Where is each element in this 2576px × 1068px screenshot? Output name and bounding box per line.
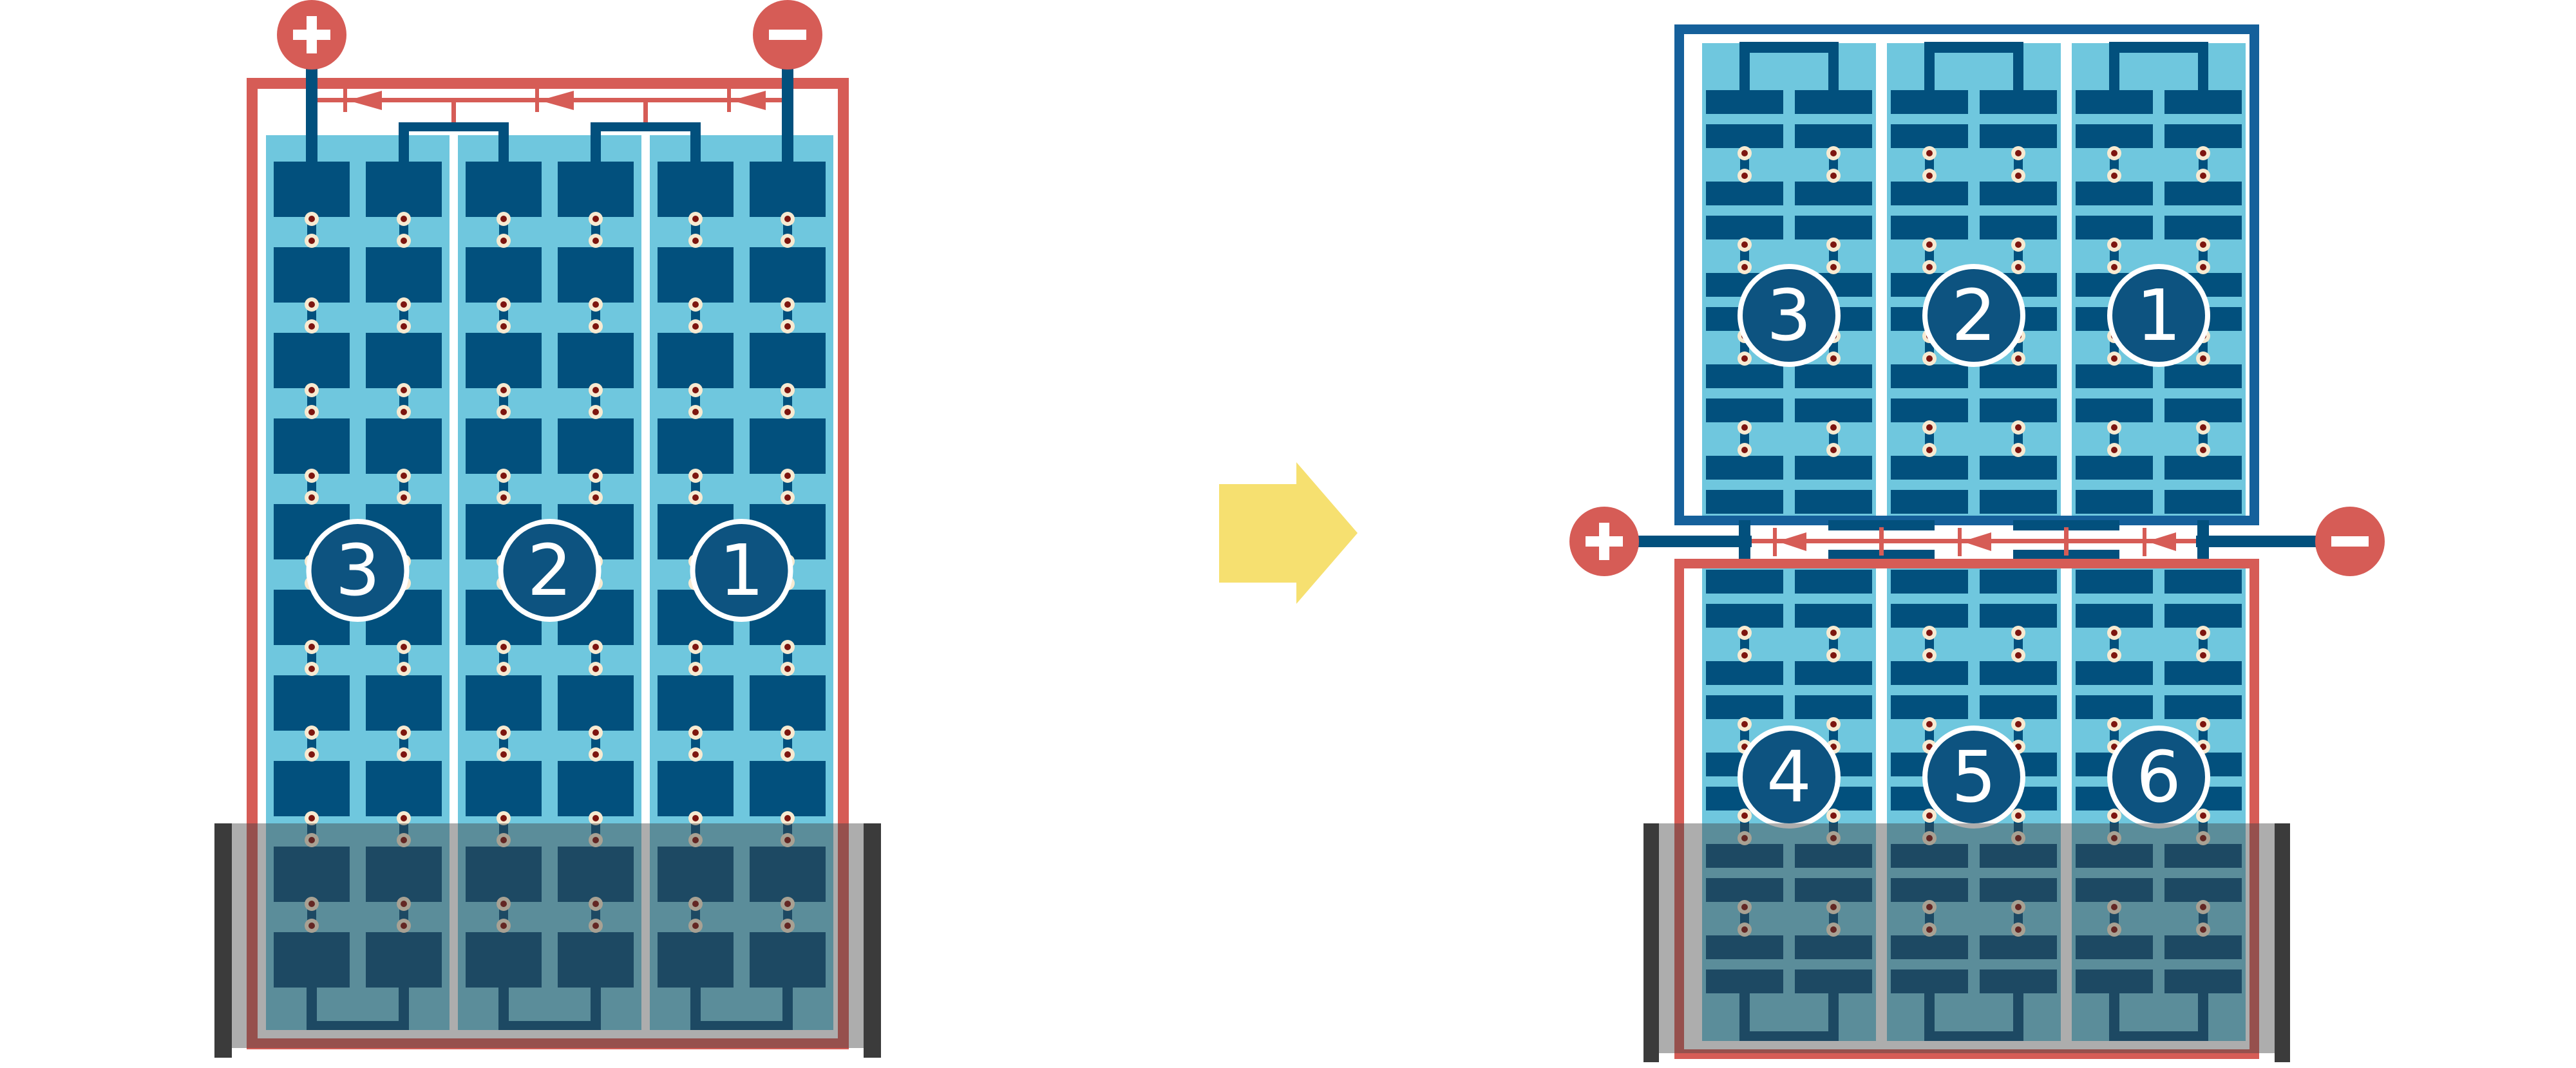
solar-cell: [1891, 90, 1968, 114]
solar-cell: [2076, 490, 2153, 514]
solder-point-core: [1741, 812, 1748, 819]
solar-cell: [558, 761, 634, 816]
string-u-connector-leg: [1924, 53, 1935, 90]
solar-cell: [1706, 695, 1783, 719]
solar-cell: [1980, 570, 2057, 594]
top-half-module: 321: [1680, 30, 2255, 521]
plus-terminal: [1569, 507, 1639, 576]
solder-point-core: [1926, 447, 1933, 453]
string-u-connector-leg: [1828, 53, 1839, 90]
solder-point-core: [592, 729, 599, 736]
solar-cell: [1891, 364, 1968, 388]
string-number-badge: 1: [2110, 267, 2208, 364]
solar-cell: [1891, 695, 1968, 719]
solder-point-core: [784, 473, 791, 479]
solder-point-core: [2015, 721, 2022, 727]
solar-cell: [558, 162, 634, 217]
solar-cell: [366, 247, 442, 303]
solar-cell: [2076, 124, 2153, 148]
solder-point-core: [2015, 447, 2022, 453]
solar-cell: [2076, 456, 2153, 480]
solder-point-core: [2111, 812, 2117, 819]
solar-cell: [658, 675, 734, 731]
solder-point-core: [1741, 173, 1748, 179]
solar-cell: [1795, 570, 1872, 594]
solar-cell: [1980, 90, 2057, 114]
string-number-label: 6: [2136, 736, 2181, 818]
solar-cell: [466, 162, 542, 217]
solder-point-core: [308, 666, 315, 672]
positive-lead-wire: [306, 64, 317, 167]
solder-point-core: [2111, 652, 2117, 659]
string-u-connector: [1924, 42, 2023, 53]
diode-cathode-bar: [2143, 528, 2146, 556]
solar-cell: [1891, 216, 1968, 239]
solar-cell: [558, 675, 634, 731]
solder-point-core: [784, 216, 791, 222]
solar-cell: [658, 333, 734, 388]
solder-point-core: [2111, 424, 2117, 431]
solar-cell: [1980, 364, 2057, 388]
solar-cell: [1980, 398, 2057, 422]
solder-point-core: [500, 644, 507, 650]
solar-cell: [558, 418, 634, 474]
solder-point-core: [308, 729, 315, 736]
solder-point-core: [1926, 150, 1933, 156]
plus-terminal: [277, 0, 346, 70]
solar-cell: [1891, 490, 1968, 514]
solder-point-core: [1741, 630, 1748, 636]
string-bridge-leg: [399, 131, 409, 165]
solder-point-core: [1926, 652, 1933, 659]
string-bridge-leg: [591, 131, 601, 165]
solar-cell: [1706, 182, 1783, 205]
minus-icon: [2331, 536, 2369, 547]
string-u-connector: [2109, 42, 2208, 53]
solder-point-core: [2200, 173, 2206, 179]
solder-point-core: [401, 729, 407, 736]
solder-point-core: [692, 301, 699, 308]
string-number-label: 5: [1951, 736, 1996, 818]
solder-point-core: [2111, 355, 2117, 362]
solder-point-core: [784, 409, 791, 415]
solar-cell: [1706, 216, 1783, 239]
water-edge-bar: [1643, 823, 1659, 1062]
solder-point-core: [308, 216, 315, 222]
solder-point-core: [592, 494, 599, 501]
minus-terminal: [753, 0, 822, 70]
solar-cell: [1795, 695, 1872, 719]
solder-point-core: [592, 815, 599, 821]
solder-point-core: [592, 644, 599, 650]
plus-vertical-bar: [307, 16, 317, 53]
solar-cell: [2164, 695, 2242, 719]
solder-point-core: [592, 387, 599, 393]
solar-cell: [2076, 398, 2153, 422]
solder-point-core: [1741, 652, 1748, 659]
solder-point-core: [2015, 264, 2022, 270]
string-number-label: 4: [1766, 736, 1812, 818]
solder-point-core: [692, 644, 699, 650]
solar-cell: [1706, 398, 1783, 422]
solar-cell: [1980, 695, 2057, 719]
solder-point-core: [2200, 630, 2206, 636]
solar-cell: [2164, 490, 2242, 514]
string-number-badge: 4: [1740, 728, 1838, 826]
string-number-label: 1: [719, 529, 764, 612]
solder-point-core: [784, 644, 791, 650]
solder-point-core: [592, 751, 599, 758]
solder-point-core: [401, 494, 407, 501]
solder-point-core: [692, 473, 699, 479]
solder-point-core: [401, 238, 407, 244]
solar-cell: [274, 761, 350, 816]
solar-cell: [750, 418, 826, 474]
solder-point-core: [308, 323, 315, 330]
solder-point-core: [692, 729, 699, 736]
plus-vertical-bar: [1599, 523, 1609, 560]
solder-point-core: [2111, 150, 2117, 156]
solar-cell: [2076, 695, 2153, 719]
solder-point-core: [1830, 721, 1837, 727]
solar-cell: [366, 761, 442, 816]
solder-point-core: [2200, 812, 2206, 819]
string-number-label: 3: [336, 529, 381, 612]
solar-cell: [1706, 456, 1783, 480]
solder-point-core: [1741, 447, 1748, 453]
negative-lead-wire: [2196, 536, 2316, 547]
solder-point-core: [1741, 150, 1748, 156]
solder-point-core: [401, 323, 407, 330]
solar-cell: [1795, 364, 1872, 388]
solar-cell: [1891, 182, 1968, 205]
solder-point-core: [784, 238, 791, 244]
solar-cell: [2076, 216, 2153, 239]
solar-cell: [2076, 570, 2153, 594]
solder-point-core: [692, 216, 699, 222]
diode-cathode-bar: [727, 89, 731, 112]
solder-point-core: [2200, 721, 2206, 727]
string-bridge-leg: [690, 131, 701, 165]
string-number-badge: 1: [693, 521, 791, 619]
solder-point-core: [308, 409, 315, 415]
solder-point-core: [592, 409, 599, 415]
solar-cell: [1891, 661, 1968, 685]
solar-cell: [1891, 124, 1968, 148]
solder-point-core: [1830, 173, 1837, 179]
string-number-badge: 2: [501, 521, 599, 619]
solder-point-core: [500, 729, 507, 736]
solar-cell: [366, 675, 442, 731]
string-number-label: 1: [2136, 274, 2181, 357]
diagram-canvas: 321321456: [0, 0, 2576, 1068]
solar-cell: [1795, 490, 1872, 514]
solar-cell: [1795, 216, 1872, 239]
solar-cell: [658, 247, 734, 303]
solar-cell: [658, 761, 734, 816]
string-bridge-leg: [498, 131, 509, 165]
solar-cell: [274, 333, 350, 388]
solar-cell: [2164, 456, 2242, 480]
solar-cell: [558, 247, 634, 303]
solder-point-core: [1926, 424, 1933, 431]
solar-cell: [2164, 90, 2242, 114]
solar-cell: [1706, 604, 1783, 628]
diode-cathode-bar: [1958, 528, 1962, 556]
solder-point-core: [1830, 630, 1837, 636]
solder-point-core: [2200, 355, 2206, 362]
solar-cell: [366, 333, 442, 388]
solder-point-core: [1741, 355, 1748, 362]
solar-cell: [1795, 604, 1872, 628]
solar-cell: [2076, 661, 2153, 685]
string-number-label: 2: [527, 529, 573, 612]
solar-cell: [2164, 216, 2242, 239]
solder-point-core: [692, 238, 699, 244]
solder-point-core: [401, 409, 407, 415]
solder-point-core: [2015, 652, 2022, 659]
string-number-badge: 5: [1925, 728, 2023, 826]
solder-point-core: [2015, 150, 2022, 156]
solder-point-core: [1830, 150, 1837, 156]
solar-cell: [1795, 398, 1872, 422]
solder-point-core: [784, 666, 791, 672]
solar-cell: [1980, 490, 2057, 514]
solar-cell: [1795, 661, 1872, 685]
minus-bar: [769, 30, 806, 40]
solder-point-core: [2111, 630, 2117, 636]
solder-point-core: [784, 494, 791, 501]
solder-point-core: [2015, 173, 2022, 179]
solar-cell: [2076, 182, 2153, 205]
solder-point-core: [2111, 241, 2117, 248]
solder-point-core: [500, 238, 507, 244]
solder-point-core: [308, 751, 315, 758]
water-edge-bar: [864, 823, 881, 1058]
solder-point-core: [592, 666, 599, 672]
solar-cell: [1706, 90, 1783, 114]
left-module: 321: [214, 0, 881, 1058]
solar-cell: [1706, 661, 1783, 685]
solder-point-core: [2200, 424, 2206, 431]
solar-cell: [466, 675, 542, 731]
solar-cell: [2076, 364, 2153, 388]
solder-point-core: [1830, 812, 1837, 819]
solder-point-core: [1926, 241, 1933, 248]
solar-cell: [2164, 182, 2242, 205]
solar-cell: [366, 162, 442, 217]
string-number-badge: 6: [2110, 728, 2208, 826]
solder-point-core: [692, 323, 699, 330]
string-number-badge: 3: [1740, 267, 1838, 364]
solar-cell: [1795, 124, 1872, 148]
pv-module-rewiring-diagram: 321321456: [0, 0, 2576, 1068]
solder-point-core: [1926, 355, 1933, 362]
solar-cell: [1706, 364, 1783, 388]
solar-cell: [1891, 456, 1968, 480]
solar-cell: [1980, 604, 2057, 628]
water-surface: [214, 823, 881, 1048]
solder-point-core: [2015, 630, 2022, 636]
solder-point-core: [308, 644, 315, 650]
solder-point-core: [401, 473, 407, 479]
solder-point-core: [1926, 721, 1933, 727]
solar-cell: [2164, 570, 2242, 594]
bus-tap: [643, 100, 648, 124]
solar-cell: [274, 162, 350, 217]
solar-cell: [658, 418, 734, 474]
solar-cell: [466, 333, 542, 388]
solder-point-core: [692, 815, 699, 821]
solar-cell: [1980, 661, 2057, 685]
solder-point-core: [2015, 241, 2022, 248]
solder-point-core: [2200, 264, 2206, 270]
positive-lead-wire: [1638, 536, 1752, 547]
solar-cell: [1795, 90, 1872, 114]
solder-point-core: [592, 216, 599, 222]
solder-point-core: [1830, 447, 1837, 453]
string-number-badge: 3: [309, 521, 407, 619]
solder-point-core: [1830, 241, 1837, 248]
solder-point-core: [692, 409, 699, 415]
solder-point-core: [2015, 812, 2022, 819]
string-number-label: 2: [1951, 274, 1996, 357]
solder-point-core: [1741, 241, 1748, 248]
solder-point-core: [2015, 355, 2022, 362]
solder-point-core: [2015, 424, 2022, 431]
solder-point-core: [2200, 150, 2206, 156]
solar-cell: [1891, 604, 1968, 628]
solder-point-core: [784, 815, 791, 821]
diode-cathode-bar: [343, 89, 347, 112]
solder-point-core: [500, 387, 507, 393]
solar-cell: [366, 418, 442, 474]
solder-point-core: [401, 666, 407, 672]
solder-point-core: [308, 387, 315, 393]
solar-cell: [466, 418, 542, 474]
string-u-connector-leg: [2109, 53, 2119, 90]
solder-point-core: [784, 729, 791, 736]
solar-cell: [466, 247, 542, 303]
string-u-connector-leg: [2013, 53, 2023, 90]
solar-cell: [2164, 661, 2242, 685]
minus-bar: [2331, 536, 2369, 547]
solder-point-core: [500, 666, 507, 672]
solder-point-core: [500, 473, 507, 479]
solar-cell: [1706, 570, 1783, 594]
solder-point-core: [500, 323, 507, 330]
string-u-connector: [1739, 42, 1839, 53]
solar-cell: [1706, 490, 1783, 514]
string-bridge: [399, 122, 509, 131]
solar-cell: [658, 162, 734, 217]
solar-cell: [274, 675, 350, 731]
water-surface: [1643, 823, 2290, 1053]
solder-point-core: [308, 815, 315, 821]
solder-point-core: [1741, 721, 1748, 727]
solder-point-core: [500, 494, 507, 501]
diode-cathode-bar: [535, 89, 539, 112]
bus-tap: [451, 100, 456, 124]
solder-point-core: [692, 666, 699, 672]
solder-point-core: [401, 387, 407, 393]
solder-point-core: [1830, 652, 1837, 659]
diode-cathode-bar: [1773, 528, 1777, 556]
bus-tap: [2064, 527, 2069, 556]
solar-cell: [2164, 124, 2242, 148]
solder-point-core: [1830, 424, 1837, 431]
solar-cell: [750, 162, 826, 217]
solar-cell: [274, 247, 350, 303]
solar-cell: [1891, 398, 1968, 422]
solar-cell: [1706, 124, 1783, 148]
minus-terminal: [2315, 507, 2385, 576]
solar-cell: [750, 247, 826, 303]
solar-cell: [2076, 604, 2153, 628]
solder-point-core: [1926, 173, 1933, 179]
solder-point-core: [500, 301, 507, 308]
solder-point-core: [784, 323, 791, 330]
string-bridge: [591, 122, 701, 131]
solar-cell: [2164, 604, 2242, 628]
solar-cell: [466, 761, 542, 816]
solder-point-core: [784, 387, 791, 393]
solder-point-core: [1741, 424, 1748, 431]
solder-point-core: [592, 238, 599, 244]
solar-cell: [1980, 216, 2057, 239]
solder-point-core: [692, 494, 699, 501]
solder-point-core: [401, 216, 407, 222]
solder-point-core: [692, 387, 699, 393]
solder-point-core: [2111, 173, 2117, 179]
solar-cell: [750, 761, 826, 816]
flood-water-overlay: [214, 823, 881, 1058]
solder-point-core: [500, 409, 507, 415]
solder-point-core: [784, 751, 791, 758]
solder-point-core: [2111, 721, 2117, 727]
solder-point-core: [1830, 355, 1837, 362]
water-edge-bar: [2275, 823, 2290, 1062]
solder-point-core: [592, 473, 599, 479]
solder-point-core: [2200, 241, 2206, 248]
minus-icon: [769, 30, 806, 40]
solder-point-core: [592, 301, 599, 308]
solar-cell: [2164, 364, 2242, 388]
solder-point-core: [308, 301, 315, 308]
solar-cell: [1980, 124, 2057, 148]
solar-cell: [1980, 456, 2057, 480]
solder-point-core: [1741, 264, 1748, 270]
solar-cell: [1980, 182, 2057, 205]
solder-point-core: [1926, 264, 1933, 270]
solar-cell: [558, 333, 634, 388]
solder-point-core: [308, 473, 315, 479]
solder-point-core: [401, 644, 407, 650]
string-number-label: 3: [1766, 274, 1812, 357]
solder-point-core: [2200, 447, 2206, 453]
solder-point-core: [2111, 264, 2117, 270]
solar-cell: [274, 418, 350, 474]
solder-point-core: [500, 751, 507, 758]
solar-cell: [1795, 182, 1872, 205]
solder-point-core: [1926, 630, 1933, 636]
solder-point-core: [401, 751, 407, 758]
solder-point-core: [1830, 264, 1837, 270]
bus-tap: [1879, 527, 1884, 556]
string-u-connector-leg: [1739, 53, 1750, 90]
negative-lead-wire: [782, 64, 793, 167]
water-edge-bar: [214, 823, 232, 1058]
